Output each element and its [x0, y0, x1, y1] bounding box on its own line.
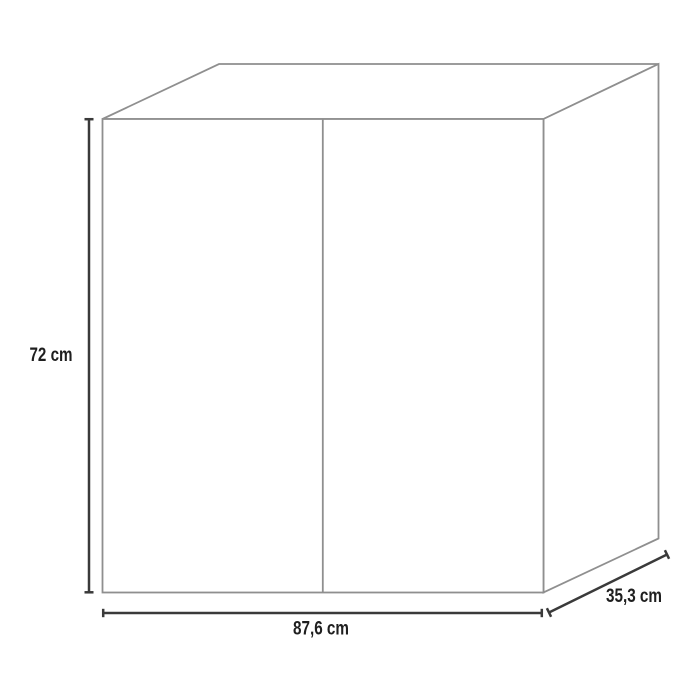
- svg-text:72 cm: 72 cm: [30, 345, 73, 366]
- svg-text:35,3 cm: 35,3 cm: [606, 586, 662, 607]
- svg-text:87,6 cm: 87,6 cm: [293, 619, 349, 640]
